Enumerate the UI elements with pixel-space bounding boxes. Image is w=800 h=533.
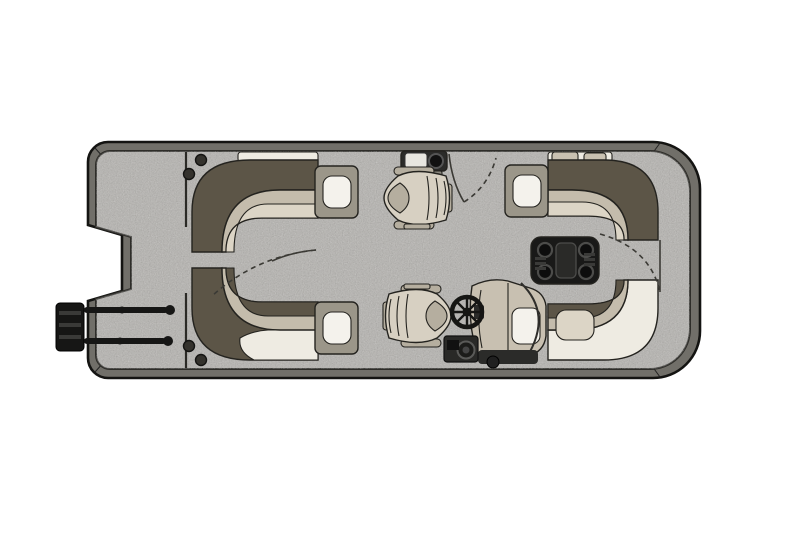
table-center-lid (556, 243, 576, 278)
ladder-rail (84, 338, 166, 344)
lounge-back-lit-band (240, 330, 318, 360)
chair-base-bar (404, 284, 430, 289)
ladder-rail (84, 307, 168, 313)
chair-base-bar (404, 224, 430, 229)
armrest-cupholder-tray (323, 176, 351, 208)
cocktail-table (531, 237, 599, 284)
floorplan-page (0, 0, 800, 533)
sink-icon (429, 154, 443, 168)
console-lid (405, 153, 427, 168)
cushion-highlight (556, 310, 594, 340)
motor-cutout-notch (88, 225, 122, 301)
armrest-cupholder-tray (513, 175, 541, 207)
steering-wheel-icon (452, 297, 482, 327)
armrest-cupholder-tray (323, 312, 351, 344)
pontoon-floorplan-diagram (0, 0, 800, 533)
